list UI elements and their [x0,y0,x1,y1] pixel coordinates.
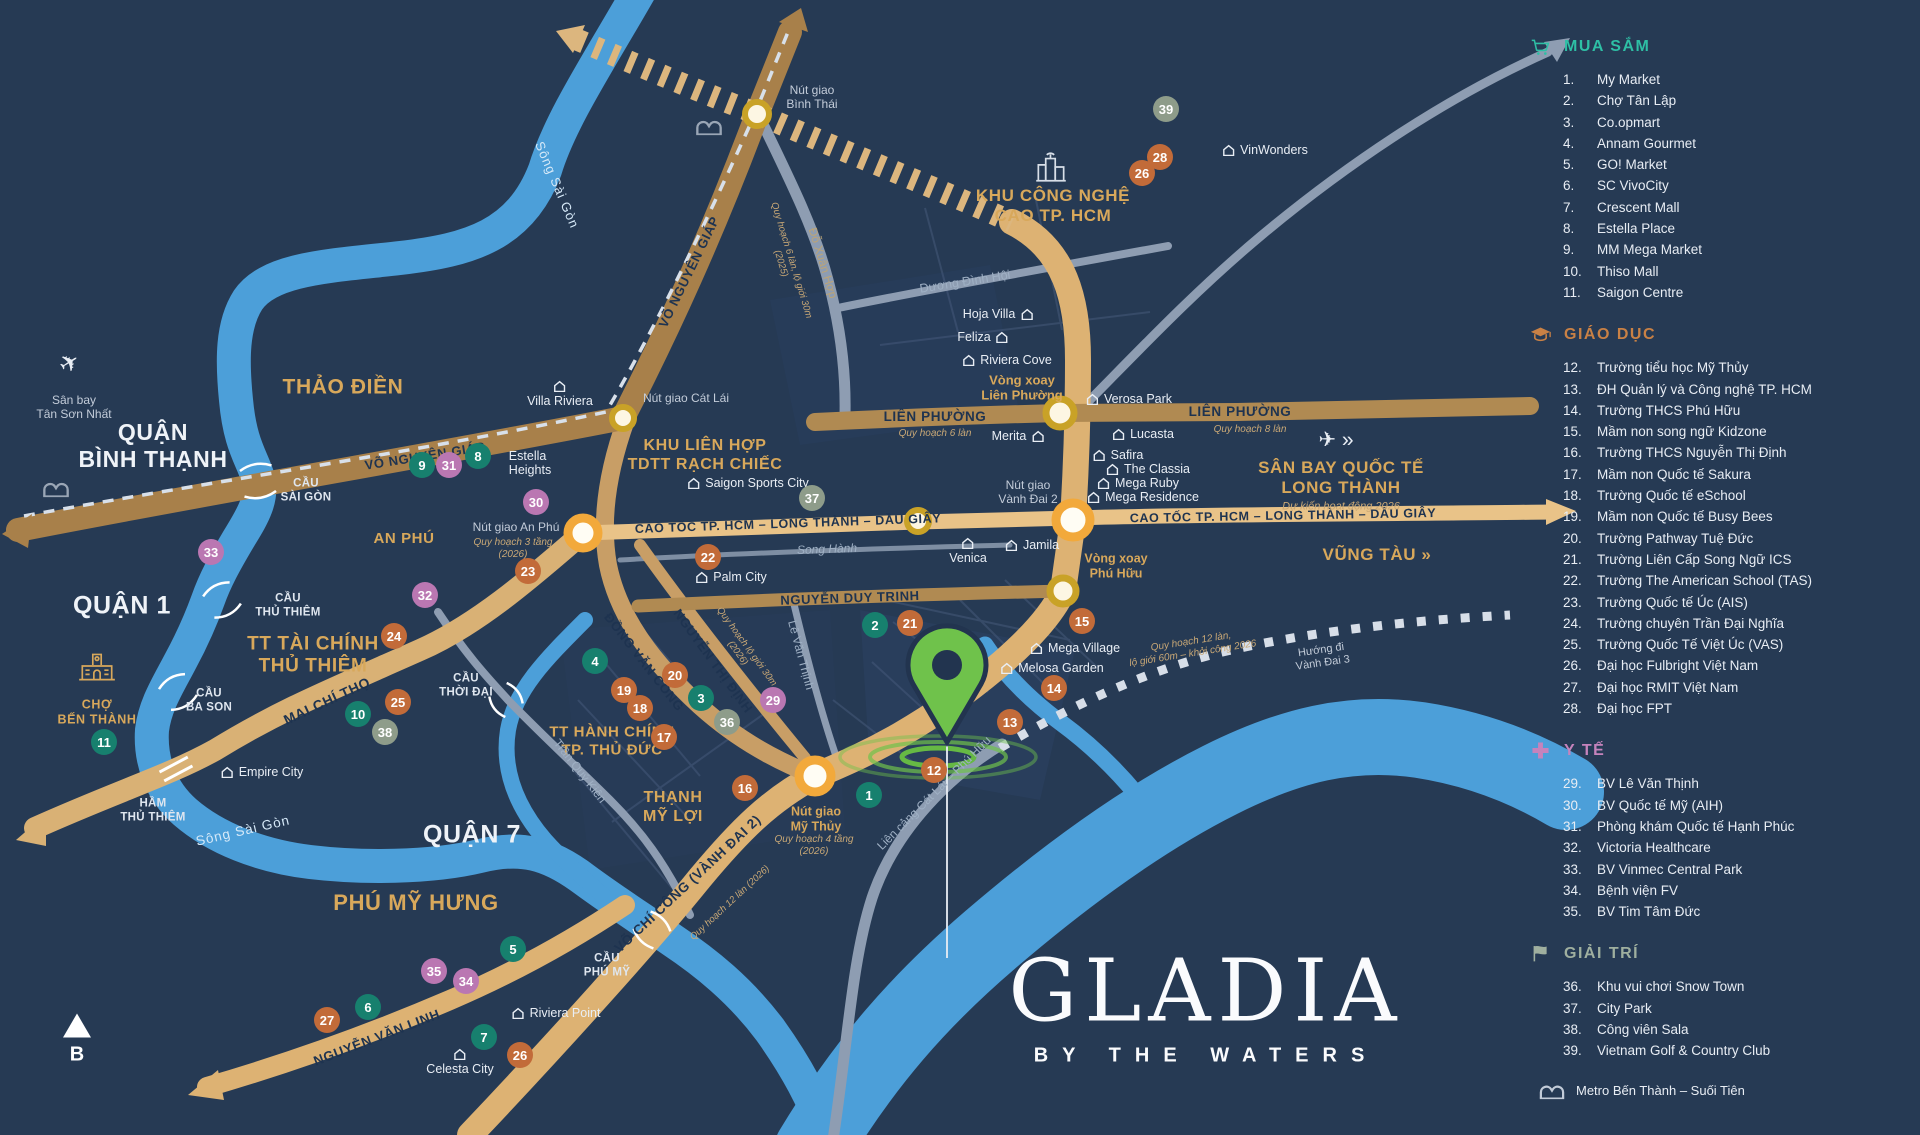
legend-item-17: 17.Mầm non Quốc tế Sakura [1563,464,1913,485]
gladia-location-map: THẢO ĐIỀNQUẬN BÌNH THẠNHQUẬN 1AN PHÚTT T… [0,0,1920,1135]
legend-item-11-number: 11. [1563,282,1597,303]
legend-item-34-number: 34. [1563,880,1597,901]
house-icon [512,1007,525,1019]
legend-item-30: 30.BV Quốc tế Mỹ (AIH) [1563,795,1913,816]
junction-an-phu: Nút giao An Phú [473,520,560,534]
landmark-empire-city: Empire City [221,765,304,779]
legend-item-27-number: 27. [1563,677,1597,698]
note-an-phu: Quy hoạch 3 tầng (2026) [474,537,553,561]
note-lien-phuong-6-lan: Quy hoạch 6 làn [899,428,972,440]
legend-section-health-header: Y TẾ [1529,740,1913,761]
legend-item-5-label: GO! Market [1597,154,1667,175]
compass-arrow-icon [63,1014,91,1038]
legend-item-21-number: 21. [1563,549,1597,570]
landmark-vinwonders: VinWonders [1222,143,1308,157]
legend-item-6-number: 6. [1563,175,1597,196]
map-marker-20: 20 [662,662,688,688]
legend-item-29: 29.BV Lê Văn Thịnh [1563,773,1913,794]
legend-item-9-label: MM Mega Market [1597,239,1702,260]
map-marker-26: 26 [507,1042,533,1068]
legend-item-25-number: 25. [1563,634,1597,655]
legend-item-30-label: BV Quốc tế Mỹ (AIH) [1597,795,1723,816]
legend-section-education: GIÁO DỤC12.Trường tiểu học Mỹ Thủy13.ĐH … [1563,324,1913,719]
area-quan-1: QUẬN 1 [73,591,171,621]
landmark-merita: Merita [992,429,1045,443]
legend-item-23-label: Trường Quốc tế Úc (AIS) [1597,592,1748,613]
legend-item-15-label: Mầm non song ngữ Kidzone [1597,421,1767,442]
legend-item-10: 10.Thiso Mall [1563,261,1913,282]
road-duong-dinh-hoi: Dương Đình Hội [919,268,1012,297]
road-lien-cang-cat-lai-phu-huu: Liên cảng Cát Lái – Phú Hữu [874,733,993,852]
map-marker-12: 12 [921,757,947,783]
legend-item-32: 32.Victoria Healthcare [1563,837,1913,858]
landmark-estella-heights: Estella Heights [509,449,551,477]
legend-item-4-number: 4. [1563,133,1597,154]
legend-title-leisure: GIẢI TRÍ [1564,945,1639,963]
road-cao-toc-right: CAO TỐC TP. HCM – LONG THÀNH – DẦU GIÂY [1130,506,1437,526]
road-do-xuan-hop: Đỗ Xuân Hợp [806,226,841,300]
legend-title-shopping: MUA SẮM [1564,38,1650,56]
legend-item-2-number: 2. [1563,90,1597,111]
area-phu-my-hung: PHÚ MỸ HƯNG [333,890,498,916]
legend-item-28: 28.Đại học FPT [1563,698,1913,719]
landmark-venica: Venica [949,537,987,565]
legend-section-shopping-header: MUA SẮM [1529,36,1913,57]
legend-item-4: 4.Annam Gourmet [1563,133,1913,154]
house-icon [1106,463,1119,475]
flag-icon [1529,943,1552,964]
legend-item-31-label: Phòng khám Quốc tế Hạnh Phúc [1597,816,1794,837]
landmark-riviera-point: Riviera Point [512,1006,601,1020]
area-thao-dien: THẢO ĐIỀN [283,376,404,401]
landmark-mega-ruby: Mega Ruby [1097,476,1179,490]
map-marker-34: 34 [453,968,479,994]
legend-item-16: 16.Trường THCS Nguyễn Thị Định [1563,442,1913,463]
legend-item-37: 37.City Park [1563,998,1913,1019]
legend-item-14-label: Trường THCS Phú Hữu [1597,400,1740,421]
landmark-vinwonders-label: VinWonders [1240,143,1308,157]
legend-item-36-number: 36. [1563,976,1597,997]
legend-item-19: 19.Mầm non Quốc tế Busy Bees [1563,506,1913,527]
legend-item-21: 21.Trường Liên Cấp Song Ngữ ICS [1563,549,1913,570]
legend-item-38: 38.Công viên Sala [1563,1019,1913,1040]
legend-item-39-label: Vietnam Golf & Country Club [1597,1040,1770,1061]
map-marker-10: 10 [345,701,371,727]
legend-title-health: Y TẾ [1564,742,1605,760]
house-icon [1112,428,1125,440]
landmark-riviera-cove-label: Riviera Cove [980,353,1052,367]
junction-my-thuy: Nút giao Mỹ Thủy [791,804,842,834]
map-marker-19: 19 [611,677,637,703]
junction-binh-thai: Nút giao Bình Thái [786,83,837,111]
legend-item-24: 24.Trường chuyên Trần Đại Nghĩa [1563,613,1913,634]
road-tran-quy-kien: Trần Quý Kiên [551,736,610,805]
landmark-saigon-sports-city: Saigon Sports City [687,476,809,490]
area-thanh-my-loi: THẠNH MỸ LỢI [643,789,703,827]
road-song-hanh: Song Hành [797,541,858,557]
legend-item-9: 9.MM Mega Market [1563,239,1913,260]
river-song-sai-gon-bottom: Sông Sài Gòn [194,812,291,849]
project-logo-title: GLADIA [1009,949,1404,1035]
note-vo-chi-cong: Quy hoạch 12 làn (2026) [688,863,772,943]
map-marker-30: 30 [523,489,549,515]
legend-item-24-label: Trường chuyên Trần Đại Nghĩa [1597,613,1784,634]
legend-item-32-number: 32. [1563,837,1597,858]
legend-item-18-number: 18. [1563,485,1597,506]
note-lien-phuong-8-lan: Quy hoạch 8 làn [1214,424,1287,436]
legend-item-24-number: 24. [1563,613,1597,634]
map-marker-7: 7 [471,1024,497,1050]
landmark-hoja-villa-label: Hoja Villa [963,307,1016,321]
direction-vanh-dai-3: Hướng đi Vành Đai 3 [1293,640,1351,673]
house-icon [962,354,975,366]
legend-item-32-label: Victoria Healthcare [1597,837,1711,858]
legend-item-8-label: Estella Place [1597,218,1675,239]
landmark-saigon-sports-city-label: Saigon Sports City [705,476,809,490]
legend-item-9-number: 9. [1563,239,1597,260]
legend-item-13-label: ĐH Quản lý và Công nghệ TP. HCM [1597,379,1812,400]
landmark-venica-label: Venica [949,551,987,565]
plane-long-thanh-icon: ✈ » [1318,429,1353,454]
landmark-verosa-park-label: Verosa Park [1104,392,1172,406]
legend-item-8: 8.Estella Place [1563,218,1913,239]
legend-item-8-number: 8. [1563,218,1597,239]
legend-item-12-label: Trường tiểu học Mỹ Thủy [1597,357,1748,378]
legend-item-35-label: BV Tim Tâm Đức [1597,901,1700,922]
house-icon [962,537,975,549]
road-cao-toc-left: CAO TỐC TP. HCM – LONG THÀNH – DẦU GIÂY [635,511,942,536]
legend-item-33-number: 33. [1563,859,1597,880]
legend-item-7-number: 7. [1563,197,1597,218]
legend-item-29-number: 29. [1563,773,1597,794]
landmark-the-classia-label: The Classia [1124,462,1190,476]
legend-item-7: 7.Crescent Mall [1563,197,1913,218]
legend-item-37-label: City Park [1597,998,1652,1019]
compass-north: B [63,1014,91,1067]
map-marker-17: 17 [651,724,677,750]
legend-item-23: 23.Trường Quốc tế Úc (AIS) [1563,592,1913,613]
legend-item-2: 2.Chợ Tân Lập [1563,90,1913,111]
legend-item-5-number: 5. [1563,154,1597,175]
map-marker-6: 6 [355,994,381,1020]
house-icon [1093,449,1106,461]
legend-item-34-label: Bệnh viện FV [1597,880,1678,901]
area-khu-cong-nghe-cao: KHU CÔNG NGHỆ CAO TP. HCM [976,186,1130,226]
landmark-melosa-garden: Melosa Garden [1000,661,1103,675]
landmark-feliza-label: Feliza [957,330,990,344]
legend-item-38-number: 38. [1563,1019,1597,1040]
landmark-mega-village: Mega Village [1030,641,1120,655]
bridge-phu-my: CẦU PHÚ MỸ [584,952,631,979]
legend-item-20-number: 20. [1563,528,1597,549]
house-icon [1030,642,1043,654]
map-marker-1: 1 [856,782,882,808]
legend-item-10-label: Thiso Mall [1597,261,1659,282]
legend-item-27: 27.Đại học RMIT Việt Nam [1563,677,1913,698]
legend-item-14-number: 14. [1563,400,1597,421]
legend-item-14: 14.Trường THCS Phú Hữu [1563,400,1913,421]
landmark-palm-city-label: Palm City [713,570,766,584]
legend-item-13-number: 13. [1563,379,1597,400]
road-lien-phuong-right: LIÊN PHƯỜNG [1189,404,1292,420]
legend-item-5: 5.GO! Market [1563,154,1913,175]
map-marker-9: 9 [409,452,435,478]
area-khu-lien-hop-tdtt: KHU LIÊN HỢP TDTT RẠCH CHIẾC [628,437,783,475]
house-icon [453,1048,466,1060]
landmark-riviera-point-label: Riviera Point [530,1006,601,1020]
map-marker-21: 21 [897,610,923,636]
legend-item-18-label: Trường Quốc tế eSchool [1597,485,1746,506]
legend-item-17-label: Mầm non Quốc tế Sakura [1597,464,1751,485]
landmark-verosa-park: Verosa Park [1086,392,1172,406]
map-marker-31: 31 [436,452,462,478]
legend-item-18: 18.Trường Quốc tế eSchool [1563,485,1913,506]
note-long-thanh: Dự kiến hoạt động 2026 [1282,501,1400,514]
bridge-thoi-dai: CẦU THỜI ĐẠI [439,672,493,699]
map-marker-36: 36 [714,709,740,735]
map-marker-39: 39 [1153,96,1179,122]
river-song-sai-gon-top: Sông Sài Gòn [532,139,582,231]
house-icon [221,766,234,778]
landmark-mega-village-label: Mega Village [1048,641,1120,655]
legend-item-26: 26.Đại học Fulbright Việt Nam [1563,655,1913,676]
landmark-lucasta-label: Lucasta [1130,427,1174,441]
map-marker-15: 15 [1069,608,1095,634]
map-marker-24: 24 [381,623,407,649]
area-quan-binh-thanh: QUẬN BÌNH THẠNH [78,419,227,473]
legend-item-3-label: Co.opmart [1597,112,1660,133]
road-le-van-thinh: Lê Văn Thịnh [785,619,817,691]
area-tt-tai-chinh-thu-thiem: TT TÀI CHÍNH THỦ THIÊM [247,634,379,679]
map-marker-23: 23 [515,558,541,584]
bridge-sai-gon: CẦU SÀI GÒN [281,477,332,504]
landmark-celesta-city-label: Celesta City [426,1062,493,1076]
legend-item-16-label: Trường THCS Nguyễn Thị Định [1597,442,1786,463]
note-planned-road: Quy hoạch 12 làn, lộ giới 60m – khởi côn… [1127,626,1257,669]
legend-section-education-header: GIÁO DỤC [1529,324,1913,345]
area-quan-7: QUẬN 7 [423,820,521,850]
legend-item-34: 34.Bệnh viện FV [1563,880,1913,901]
house-icon [695,571,708,583]
junction-cat-lai: Nút giao Cát Lái [643,391,729,405]
plane-tan-son-nhat-icon: ✈ [54,347,86,382]
legend-section-leisure-header: GIẢI TRÍ [1529,943,1913,964]
legend-item-20-label: Trường Pathway Tuệ Đức [1597,528,1753,549]
house-icon [1097,477,1110,489]
project-logo-subtitle: BY THE WATERS [1009,1045,1404,1068]
legend-item-35: 35.BV Tim Tâm Đức [1563,901,1913,922]
legend-item-38-label: Công viên Sala [1597,1019,1689,1040]
tunnel-thu-thiem: HẦM THỦ THIÊM [120,797,185,824]
landmark-jamila-label: Jamila [1023,538,1059,552]
area-vung-tau: VŨNG TÀU » [1323,545,1432,565]
legend-item-26-label: Đại học Fulbright Việt Nam [1597,655,1758,676]
bridge-ba-son: CẦU BA SON [186,687,232,714]
note-nguyen-thi-dinh: Quy hoạch lộ giới 30m (2026) [705,605,779,695]
map-marker-33: 33 [198,539,224,565]
map-marker-29: 29 [760,687,786,713]
legend-item-1-label: My Market [1597,69,1660,90]
legend-item-10-number: 10. [1563,261,1597,282]
legend-item-3-number: 3. [1563,112,1597,133]
landmark-melosa-garden-label: Melosa Garden [1018,661,1103,675]
metro-icon [1538,1080,1566,1100]
map-marker-22: 22 [695,544,721,570]
house-icon [1000,662,1013,674]
legend-item-20: 20.Trường Pathway Tuệ Đức [1563,528,1913,549]
landmark-jamila: Jamila [1005,538,1059,552]
map-marker-14: 14 [1041,675,1067,701]
house-icon [1222,144,1235,156]
legend-item-7-label: Crescent Mall [1597,197,1680,218]
landmark-empire-city-label: Empire City [239,765,304,779]
map-marker-5: 5 [500,936,526,962]
legend-item-31: 31.Phòng khám Quốc tế Hạnh Phúc [1563,816,1913,837]
label-san-bay-tan-son-nhat: Sân bay Tân Sơn Nhất [36,393,111,421]
area-san-bay-long-thanh: SÂN BAY QUỐC TẾ LONG THÀNH [1258,458,1424,498]
house-icon [553,380,566,392]
landmark-mega-ruby-label: Mega Ruby [1115,476,1179,490]
legend-item-29-label: BV Lê Văn Thịnh [1597,773,1699,794]
map-marker-2: 2 [862,612,888,638]
legend-item-22-number: 22. [1563,570,1597,591]
legend-item-19-number: 19. [1563,506,1597,527]
legend-item-37-number: 37. [1563,998,1597,1019]
grad-cap-icon [1529,324,1552,345]
landmark-merita-label: Merita [992,429,1027,443]
house-icon [996,331,1009,343]
legend-title-education: GIÁO DỤC [1564,326,1656,344]
area-cho-ben-thanh: CHỢ BẾN THÀNH [57,697,136,727]
legend-item-3: 3.Co.opmart [1563,112,1913,133]
map-marker-37: 37 [799,485,825,511]
legend-item-11: 11.Saigon Centre [1563,282,1913,303]
house-icon [687,477,700,489]
roundabout-lien-phuong: Vòng xoay Liên Phường [981,373,1063,404]
house-icon [1020,308,1033,320]
landmark-feliza: Feliza [957,330,1008,344]
landmark-mega-residence-label: Mega Residence [1105,490,1199,504]
legend-item-17-number: 17. [1563,464,1597,485]
legend-item-19-label: Mầm non Quốc tế Busy Bees [1597,506,1773,527]
area-an-phu: AN PHÚ [373,530,434,548]
legend-item-15-number: 15. [1563,421,1597,442]
medical-cross-icon [1529,740,1552,761]
legend-metro-line: Metro Bến Thành – Suối Tiên [1538,1080,1745,1100]
legend-item-25-label: Trường Quốc Tế Việt Úc (VAS) [1597,634,1783,655]
project-logo: GLADIA BY THE WATERS [1009,949,1404,1068]
map-marker-8: 8 [465,443,491,469]
road-vo-nguyen-giap-up: VÕ NGUYÊN GIÁP [655,214,722,330]
landmark-mega-residence: Mega Residence [1087,490,1199,504]
legend-item-33-label: BV Vinmec Central Park [1597,859,1742,880]
legend-item-4-label: Annam Gourmet [1597,133,1696,154]
house-icon [1086,393,1099,405]
legend-item-36-label: Khu vui chơi Snow Town [1597,976,1744,997]
legend-item-11-label: Saigon Centre [1597,282,1683,303]
map-marker-11: 11 [91,729,117,755]
map-marker-13: 13 [997,709,1023,735]
legend-item-6-label: SC VivoCity [1597,175,1669,196]
legend-item-12-number: 12. [1563,357,1597,378]
landmark-safira: Safira [1093,448,1144,462]
road-nguyen-duy-trinh: NGUYỄN DUY TRINH [780,588,920,608]
roundabout-phu-huu: Vòng xoay Phú Hữu [1084,551,1147,581]
legend-item-2-label: Chợ Tân Lập [1597,90,1676,111]
map-marker-27: 27 [314,1007,340,1033]
legend-item-35-number: 35. [1563,901,1597,922]
road-vo-chi-cong: VÕ CHÍ CÔNG (VÀNH ĐAI 2) [611,812,764,956]
legend-item-27-label: Đại học RMIT Việt Nam [1597,677,1738,698]
map-marker-3: 3 [688,685,714,711]
bridge-thu-thiem: CẦU THỦ THIÊM [255,592,320,619]
legend-section-leisure: GIẢI TRÍ36.Khu vui chơi Snow Town37.City… [1563,943,1913,1061]
landmark-palm-city: Palm City [695,570,766,584]
metro-line-label: Metro Bến Thành – Suối Tiên [1576,1083,1745,1098]
legend-item-6: 6.SC VivoCity [1563,175,1913,196]
landmark-villa-riviera: Villa Riviera [527,380,593,408]
junction-vanh-dai-2: Nút giao Vành Đai 2 [998,478,1057,506]
legend-item-28-label: Đại học FPT [1597,698,1672,719]
landmark-hoja-villa: Hoja Villa [963,307,1034,321]
map-marker-4: 4 [582,648,608,674]
legend-item-1-number: 1. [1563,69,1597,90]
legend-item-36: 36.Khu vui chơi Snow Town [1563,976,1913,997]
legend-item-15: 15.Mầm non song ngữ Kidzone [1563,421,1913,442]
landmark-celesta-city: Celesta City [426,1048,493,1076]
note-do-xuan-hop: Quy hoạch 6 làn, lộ giới 30m (2025) [758,201,815,323]
cart-icon [1529,36,1552,57]
legend-item-39-number: 39. [1563,1040,1597,1061]
legend-item-22: 22.Trường The American School (TAS) [1563,570,1913,591]
landmark-the-classia: The Classia [1106,462,1190,476]
legend-section-health: Y TẾ29.BV Lê Văn Thịnh30.BV Quốc tế Mỹ (… [1563,740,1913,922]
landmark-estella-heights-label: Estella Heights [509,449,551,477]
legend-item-31-number: 31. [1563,816,1597,837]
legend-item-16-number: 16. [1563,442,1597,463]
map-marker-25: 25 [385,689,411,715]
road-lien-phuong-left: LIÊN PHƯỜNG [884,409,987,425]
map-marker-16: 16 [732,775,758,801]
legend-item-33: 33.BV Vinmec Central Park [1563,859,1913,880]
legend-item-21-label: Trường Liên Cấp Song Ngữ ICS [1597,549,1792,570]
legend-item-26-number: 26. [1563,655,1597,676]
map-marker-32: 32 [412,582,438,608]
legend-panel: MUA SẮM1.My Market2.Chợ Tân Lập3.Co.opma… [1563,36,1913,1083]
legend-item-25: 25.Trường Quốc Tế Việt Úc (VAS) [1563,634,1913,655]
legend-item-39: 39.Vietnam Golf & Country Club [1563,1040,1913,1061]
note-my-thuy: Quy hoạch 4 tầng (2026) [775,834,854,858]
legend-item-22-label: Trường The American School (TAS) [1597,570,1812,591]
legend-item-12: 12.Trường tiểu học Mỹ Thủy [1563,357,1913,378]
map-marker-35: 35 [421,958,447,984]
landmark-safira-label: Safira [1111,448,1144,462]
legend-section-shopping: MUA SẮM1.My Market2.Chợ Tân Lập3.Co.opma… [1563,36,1913,303]
landmark-lucasta: Lucasta [1112,427,1174,441]
house-icon [1005,539,1018,551]
legend-item-13: 13.ĐH Quản lý và Công nghệ TP. HCM [1563,379,1913,400]
landmark-riviera-cove: Riviera Cove [962,353,1052,367]
legend-item-1: 1.My Market [1563,69,1913,90]
landmark-villa-riviera-label: Villa Riviera [527,394,593,408]
compass-label: B [63,1044,91,1067]
house-icon [1087,491,1100,503]
map-marker-28: 28 [1147,144,1173,170]
legend-item-28-number: 28. [1563,698,1597,719]
house-icon [1031,430,1044,442]
legend-item-23-number: 23. [1563,592,1597,613]
map-marker-38: 38 [372,719,398,745]
